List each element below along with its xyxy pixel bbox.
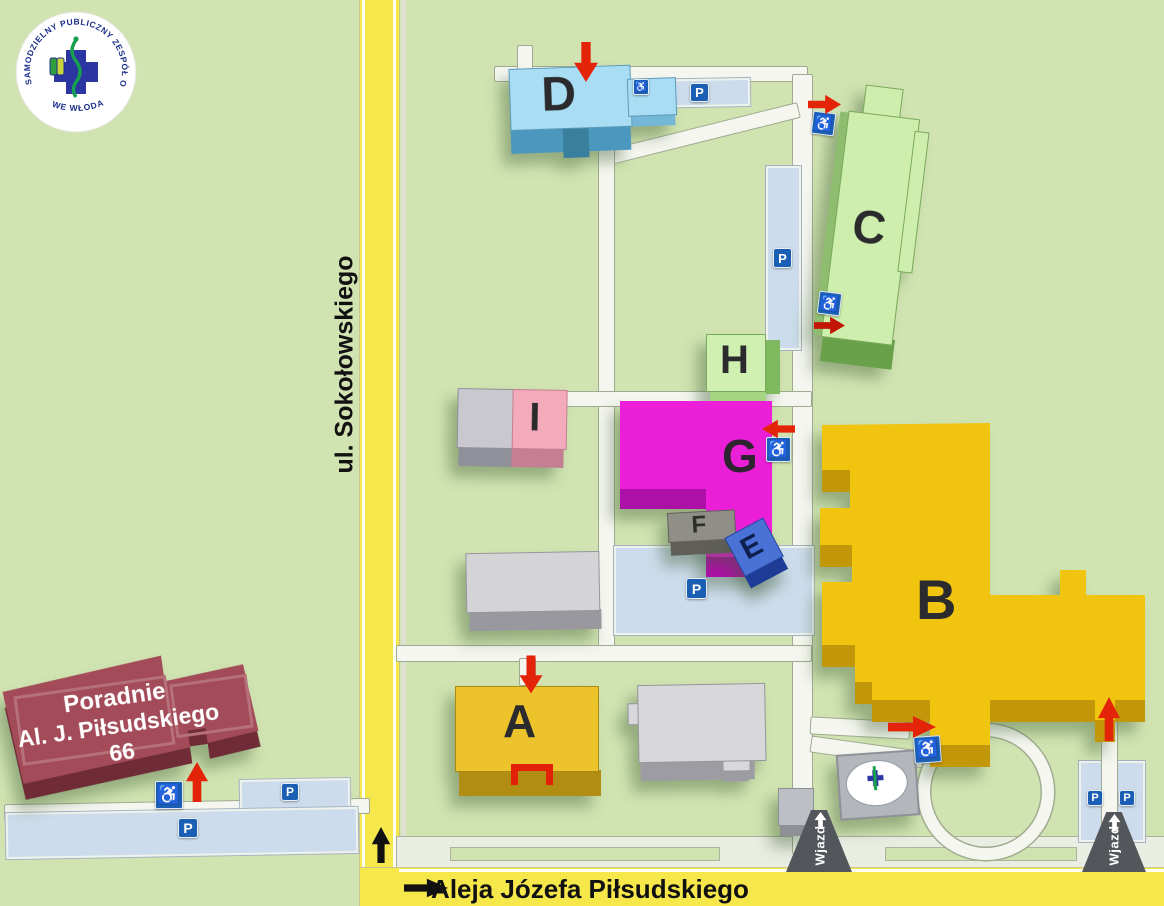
logo-shield-icon bbox=[50, 58, 64, 75]
building-g-label: G bbox=[722, 433, 758, 479]
parking-sign: P bbox=[690, 83, 709, 102]
road-edge-line bbox=[362, 0, 365, 906]
parking-sign: P bbox=[178, 818, 198, 838]
road-edge-line bbox=[399, 869, 1164, 872]
wheelchair-icon: ♿ bbox=[817, 291, 843, 317]
building-poradnie: Poradnie Al. J. Piłsudskiego 66 bbox=[0, 639, 270, 795]
road-median bbox=[450, 847, 720, 861]
sidewalk-strip bbox=[401, 0, 406, 836]
building-c-label: C bbox=[850, 202, 889, 252]
building-b-label: B bbox=[916, 572, 956, 628]
building-a-label: A bbox=[503, 698, 536, 744]
wheelchair-icon: ♿ bbox=[811, 111, 837, 137]
street-label-sokolowskiego: ul. Sokołowskiego bbox=[331, 254, 360, 476]
building-h: H bbox=[706, 332, 786, 412]
building-gray-south bbox=[627, 675, 779, 796]
building-a-entrance-canopy bbox=[511, 764, 553, 785]
road-edge-line bbox=[393, 0, 396, 868]
building-h-label: H bbox=[720, 340, 749, 380]
hospital-sign-board bbox=[836, 749, 921, 822]
entrance-road-south-label: Wjazd bbox=[813, 825, 828, 865]
building-d: D bbox=[508, 59, 679, 165]
wheelchair-icon: ♿ bbox=[155, 781, 183, 809]
parking-sign: P bbox=[773, 248, 792, 268]
parking-sign: P bbox=[1087, 790, 1103, 806]
building-i-label: I bbox=[529, 397, 541, 437]
building-i: I bbox=[456, 388, 567, 470]
building-a: A bbox=[455, 680, 605, 800]
street-label-pilsudskiego: Aleja Józefa Piłsudskiego bbox=[400, 874, 780, 905]
path-south bbox=[396, 645, 812, 662]
parking-sign: P bbox=[1119, 790, 1135, 806]
hospital-campus-map: D C H I G F E bbox=[0, 0, 1164, 906]
hospital-logo: SAMODZIELNY PUBLICZNY ZESPÓŁ OPIEKI ZDRO… bbox=[12, 8, 140, 136]
parking-sign: P bbox=[281, 783, 299, 801]
wheelchair-icon: ♿ bbox=[913, 735, 942, 764]
building-d-label: D bbox=[541, 71, 577, 120]
wheelchair-icon: ♿ bbox=[766, 437, 791, 462]
parking-sign: P bbox=[686, 578, 707, 599]
building-f-label: F bbox=[691, 513, 707, 538]
wheelchair-icon: ♿ bbox=[633, 79, 649, 95]
entrance-road-southeast-label: Wjazd bbox=[1107, 825, 1122, 865]
building-gray-central bbox=[465, 549, 606, 635]
